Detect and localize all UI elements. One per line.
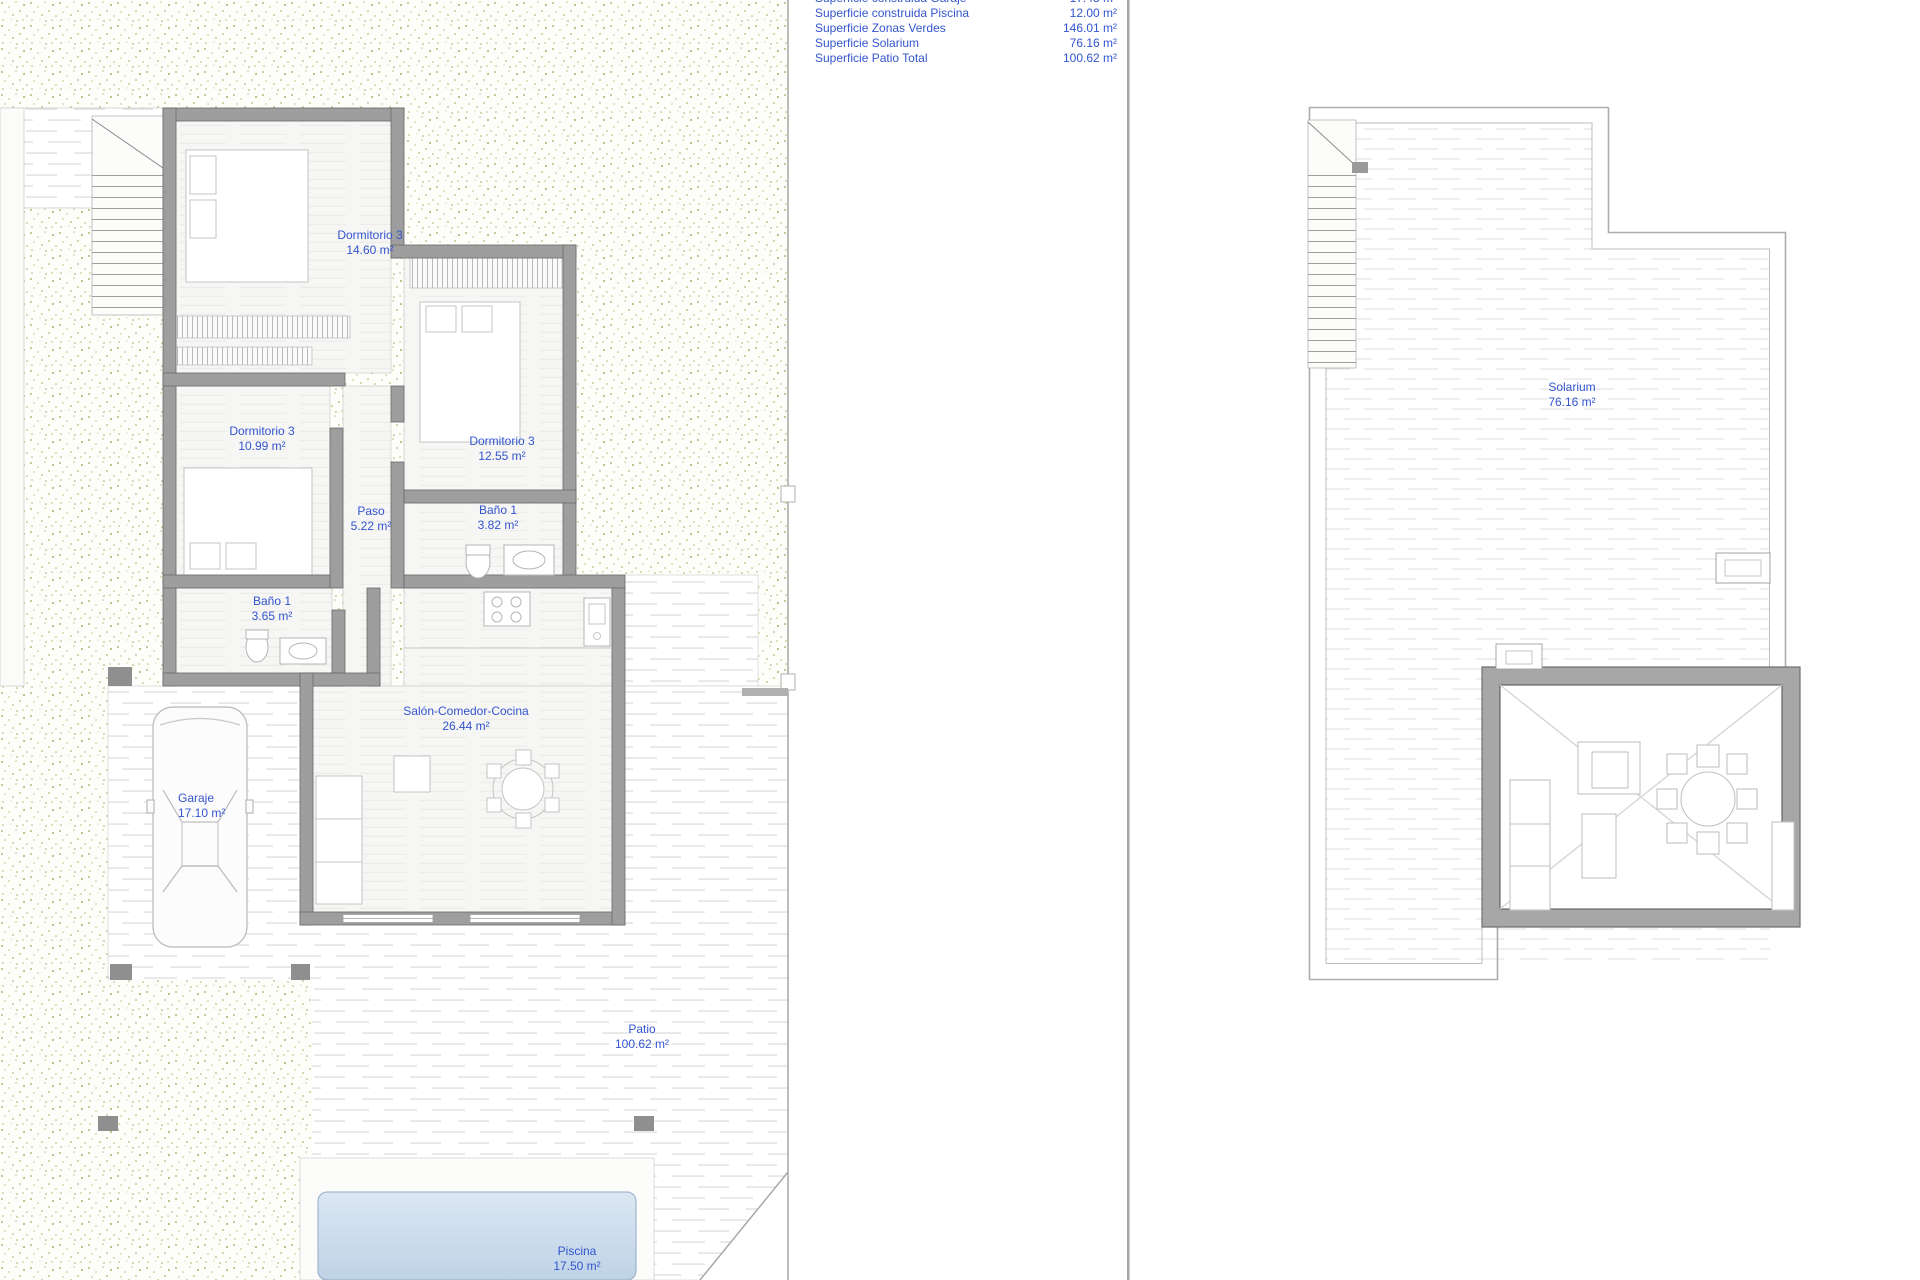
skylight bbox=[1716, 553, 1770, 583]
room-label-salon: Salón-Comedor-Cocina 26.44 m² bbox=[403, 704, 528, 734]
exterior-stairs bbox=[92, 116, 163, 315]
room-label-garaje: Garaje 17.10 m² bbox=[178, 791, 225, 821]
room-label-paso: Paso 5.22 m² bbox=[351, 504, 392, 534]
room-label-bano-left: Baño 1 3.65 m² bbox=[252, 594, 293, 624]
ground-floor-plan bbox=[0, 0, 1127, 1280]
legend-value: 100.62 m² bbox=[1063, 51, 1117, 66]
legend-label: Superficie construida Piscina bbox=[815, 6, 969, 21]
legend-value: 146.01 m² bbox=[1063, 21, 1117, 36]
room-label-piscina: Piscina 17.50 m² bbox=[553, 1244, 600, 1274]
bathroom-right-fixtures bbox=[466, 545, 554, 578]
legend-row: Superficie construida Piscina 12.00 m² bbox=[815, 6, 1117, 21]
fence-post bbox=[781, 674, 795, 690]
sheet-divider-line bbox=[1127, 0, 1130, 1280]
car-icon bbox=[147, 707, 253, 947]
room-label-dormitorio-right: Dormitorio 3 12.55 m² bbox=[469, 434, 534, 464]
legend-value: 12.00 m² bbox=[1070, 6, 1117, 21]
legend-row: Superficie Solarium 76.16 m² bbox=[815, 36, 1117, 51]
room-label-patio: Patio 100.62 m² bbox=[615, 1022, 669, 1052]
room-label-bano-right: Baño 1 3.82 m² bbox=[478, 503, 519, 533]
legend-label: Superficie Zonas Verdes bbox=[815, 21, 946, 36]
legend-row: Superficie Patio Total 100.62 m² bbox=[815, 51, 1117, 66]
bed-left-bedroom bbox=[184, 468, 312, 575]
legend-label: Superficie Patio Total bbox=[815, 51, 928, 66]
bed-right-bedroom bbox=[420, 302, 520, 442]
garden-southwest bbox=[0, 980, 312, 1280]
roof-plan bbox=[1308, 108, 1800, 980]
surface-legend: Superficie construida Garaje 17.48 m² Su… bbox=[815, 0, 1117, 66]
side-path-strip bbox=[0, 108, 24, 686]
room-label-dormitorio-left: Dormitorio 3 10.99 m² bbox=[229, 424, 294, 454]
fence-post bbox=[781, 486, 795, 502]
legend-value: 76.16 m² bbox=[1070, 36, 1117, 51]
legend-label: Superficie Solarium bbox=[815, 36, 919, 51]
plan-drawing bbox=[0, 0, 1920, 1280]
room-label-solarium: Solarium 76.16 m² bbox=[1548, 380, 1595, 410]
legend-row: Superficie Zonas Verdes 146.01 m² bbox=[815, 21, 1117, 36]
patio-east-terrace bbox=[625, 575, 758, 686]
floor-plan-sheet: Superficie construida Garaje 17.48 m² Su… bbox=[0, 0, 1920, 1280]
bed-top-bedroom bbox=[186, 150, 308, 282]
garden-gate-wall bbox=[742, 688, 788, 696]
room-label-dormitorio-top: Dormitorio 3 14.60 m² bbox=[337, 228, 402, 258]
